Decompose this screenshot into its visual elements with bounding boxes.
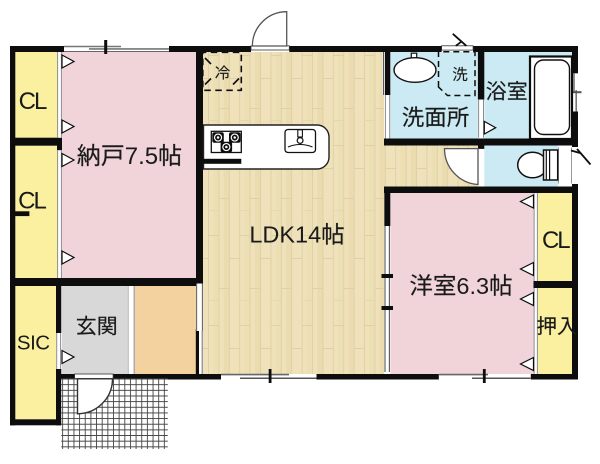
svg-text:CL: CL	[542, 227, 570, 254]
svg-text:CL: CL	[18, 187, 46, 214]
svg-text:SIC: SIC	[17, 332, 50, 355]
svg-text:7.5: 7.5	[125, 143, 158, 170]
svg-text:CL: CL	[19, 88, 47, 115]
svg-text:6.3: 6.3	[456, 273, 489, 299]
svg-text:LDK14: LDK14	[249, 222, 321, 248]
